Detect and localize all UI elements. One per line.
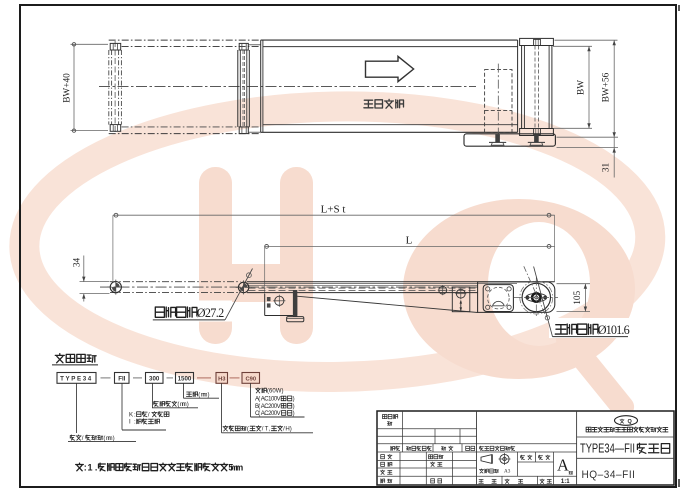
svg-text:5mm: 5mm bbox=[228, 462, 243, 472]
svg-text:1.: 1. bbox=[88, 462, 98, 472]
svg-text:L: L bbox=[406, 235, 413, 247]
svg-text:Ø101.6: Ø101.6 bbox=[598, 323, 630, 337]
svg-text:): ) bbox=[293, 411, 295, 417]
svg-text:mm: mm bbox=[201, 391, 208, 398]
svg-text:A: A bbox=[557, 456, 569, 475]
svg-text:K:: K: bbox=[129, 411, 136, 418]
svg-text:): ) bbox=[113, 435, 115, 442]
svg-text:TYPE34: TYPE34 bbox=[60, 375, 93, 382]
svg-text:(: ( bbox=[247, 426, 249, 433]
svg-text:H3: H3 bbox=[218, 376, 226, 382]
svg-text:34: 34 bbox=[73, 258, 83, 268]
svg-text:/: / bbox=[148, 411, 150, 418]
svg-text:FII: FII bbox=[118, 375, 125, 382]
svg-text:AC200V: AC200V bbox=[261, 404, 281, 410]
svg-text:A3: A3 bbox=[504, 469, 511, 475]
svg-text:/H: /H bbox=[283, 426, 290, 433]
svg-text:31: 31 bbox=[602, 163, 612, 173]
svg-text:mm: mm bbox=[180, 401, 187, 408]
svg-text:): ) bbox=[208, 391, 210, 398]
svg-text:): ) bbox=[187, 401, 189, 408]
svg-text:HQ–34–FII: HQ–34–FII bbox=[582, 469, 636, 481]
svg-text:BW: BW bbox=[577, 80, 587, 95]
svg-text:C90: C90 bbox=[245, 376, 256, 382]
svg-text:mm: mm bbox=[106, 435, 113, 442]
svg-text:,: , bbox=[268, 426, 270, 433]
svg-text:AC200V: AC200V bbox=[261, 411, 281, 417]
svg-text:AC100V: AC100V bbox=[261, 397, 281, 403]
svg-text:TYPE34—FII: TYPE34—FII bbox=[580, 441, 635, 456]
svg-text:): ) bbox=[293, 397, 295, 403]
svg-text:(60W): (60W) bbox=[267, 389, 284, 395]
svg-text:Q: Q bbox=[628, 419, 633, 425]
svg-text:Ø27.2: Ø27.2 bbox=[197, 306, 225, 320]
svg-text:L+S t: L+S t bbox=[321, 203, 346, 215]
svg-text:): ) bbox=[290, 426, 292, 433]
svg-text:/: / bbox=[82, 435, 84, 442]
svg-text:BW+40: BW+40 bbox=[62, 73, 72, 103]
svg-text::: : bbox=[84, 462, 87, 472]
svg-text:1500: 1500 bbox=[178, 375, 192, 382]
svg-text:BW+56: BW+56 bbox=[602, 72, 612, 102]
svg-text:): ) bbox=[293, 404, 295, 410]
svg-text:1:1: 1:1 bbox=[561, 479, 570, 485]
svg-text:300: 300 bbox=[149, 375, 160, 382]
svg-text:105: 105 bbox=[573, 290, 583, 304]
